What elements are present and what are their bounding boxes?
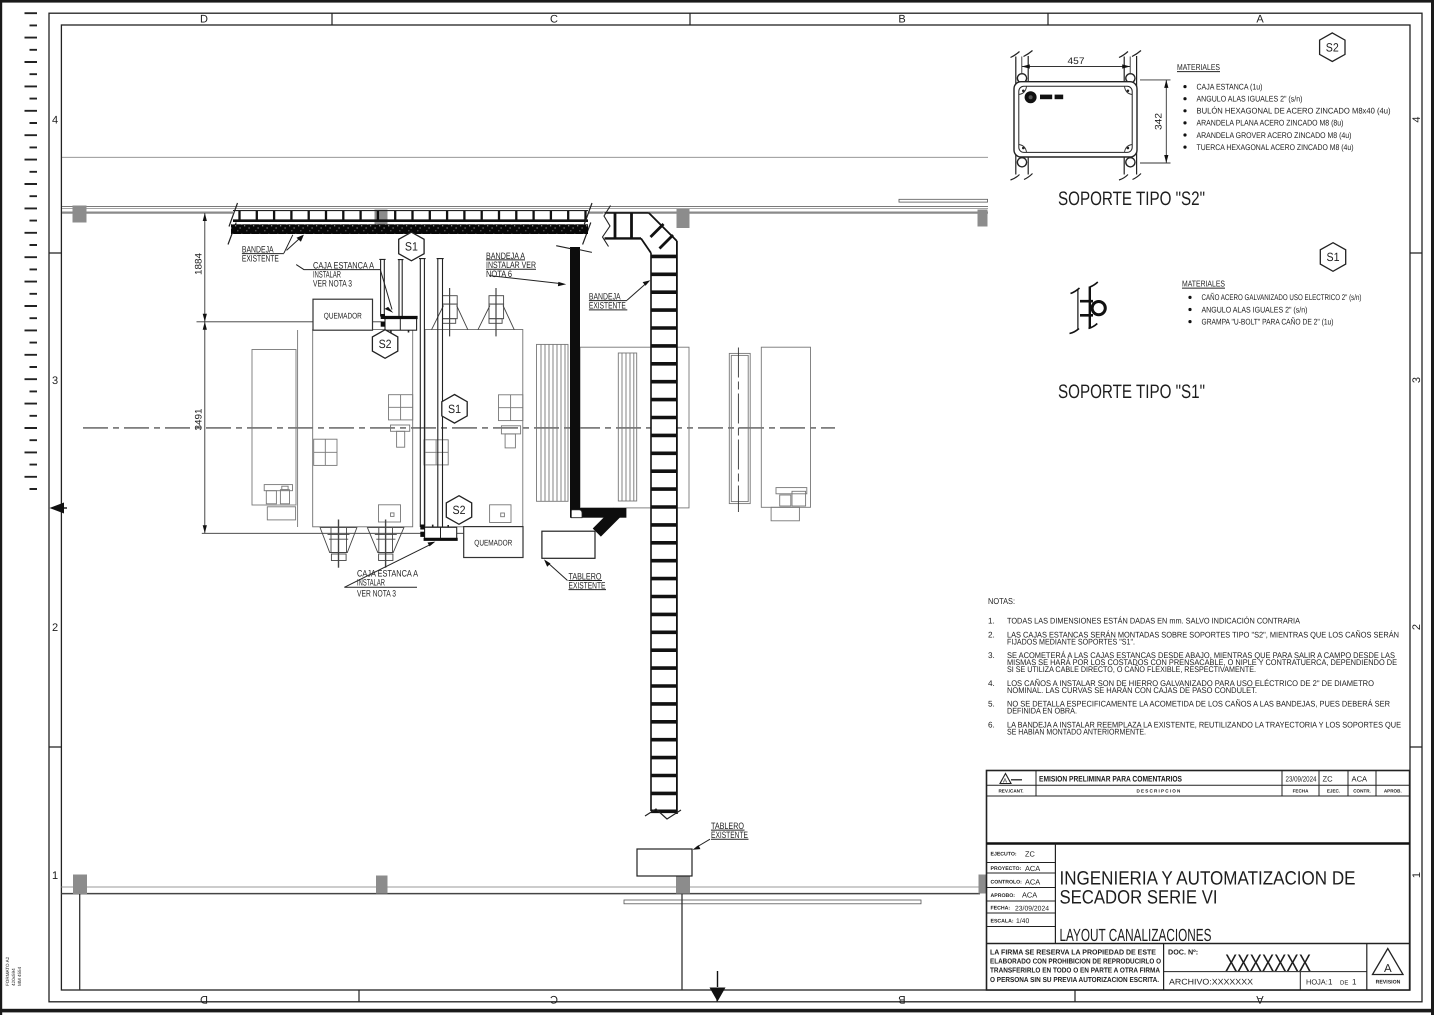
svg-text:2: 2	[52, 622, 58, 634]
svg-text:ANGULO ALAS IGUALES 2" (s/n): ANGULO ALAS IGUALES 2" (s/n)	[1202, 305, 1308, 314]
svg-text:EXISTENTE: EXISTENTE	[711, 830, 748, 840]
svg-text:EXISTENTE: EXISTENTE	[589, 301, 626, 311]
svg-text:2: 2	[1411, 624, 1423, 630]
svg-text:S1: S1	[405, 240, 418, 254]
svg-text:420x594: 420x594	[11, 968, 16, 986]
svg-text:3491: 3491	[194, 409, 205, 431]
svg-text:EJECUTO:: EJECUTO:	[991, 852, 1017, 858]
svg-text:D: D	[200, 993, 208, 1005]
svg-text:3: 3	[1411, 377, 1423, 383]
svg-text:3.: 3.	[988, 651, 995, 660]
svg-text:XXXXXXX: XXXXXXX	[1225, 950, 1311, 977]
svg-text:4: 4	[1411, 116, 1423, 122]
svg-text:ZC: ZC	[1025, 850, 1036, 859]
svg-text:MATERIALES: MATERIALES	[1182, 279, 1225, 289]
svg-text:ACA: ACA	[1025, 878, 1040, 887]
svg-text:S1: S1	[448, 402, 461, 416]
svg-text:APROBO:: APROBO:	[991, 893, 1016, 899]
svg-text:QUEMADOR: QUEMADOR	[324, 311, 362, 320]
svg-text:3: 3	[52, 375, 58, 387]
svg-text:CAJA ESTANCA (1u): CAJA ESTANCA (1u)	[1197, 82, 1263, 91]
svg-text:CONTR.: CONTR.	[1353, 789, 1371, 794]
svg-text:EXISTENTE: EXISTENTE	[242, 254, 279, 264]
svg-text:4.: 4.	[988, 679, 995, 688]
svg-text:FIJADOS MEDIANTE SOPORTES "S1": FIJADOS MEDIANTE SOPORTES "S1".	[1007, 638, 1135, 647]
svg-text:ESCALA:: ESCALA:	[991, 919, 1014, 925]
svg-text:ELABORADO CON PROHIBICION DE R: ELABORADO CON PROHIBICION DE REPRODUCIRL…	[990, 957, 1161, 966]
svg-text:S2: S2	[1326, 40, 1339, 54]
svg-text:SOPORTE TIPO "S1": SOPORTE TIPO "S1"	[1058, 381, 1205, 403]
svg-text:DE: DE	[1340, 979, 1348, 986]
svg-text:1: 1	[1411, 872, 1423, 878]
svg-text:1884: 1884	[194, 253, 205, 275]
svg-text:B: B	[898, 14, 905, 26]
svg-text:APROB.: APROB.	[1384, 789, 1402, 794]
svg-text:B: B	[898, 993, 905, 1005]
svg-text:ARCHIVO:XXXXXXX: ARCHIVO:XXXXXXX	[1169, 978, 1254, 987]
svg-text:HOJA:: HOJA:	[1306, 977, 1328, 986]
svg-text:ANGULO ALAS IGUALES 2" (s/n): ANGULO ALAS IGUALES 2" (s/n)	[1197, 95, 1303, 104]
svg-text:EJEC.: EJEC.	[1327, 789, 1340, 794]
svg-text:2.: 2.	[988, 631, 995, 640]
svg-text:BULÓN HEXAGONAL DE ACERO ZINCA: BULÓN HEXAGONAL DE ACERO ZINCADO M8x40 (…	[1197, 106, 1391, 116]
svg-text:QUEMADOR: QUEMADOR	[474, 539, 512, 548]
svg-text:MM 4554: MM 4554	[17, 966, 22, 986]
svg-text:SOPORTE TIPO "S2": SOPORTE TIPO "S2"	[1058, 188, 1205, 210]
svg-text:GRAMPA "U-BOLT" PARA CAÑO DE 2: GRAMPA "U-BOLT" PARA CAÑO DE 2" (1u)	[1202, 316, 1334, 326]
svg-text:REV./CANT.: REV./CANT.	[998, 789, 1023, 794]
svg-text:23/09/2024: 23/09/2024	[1015, 906, 1049, 913]
svg-text:TODAS LAS DIMENSIONES ESTÁN DA: TODAS LAS DIMENSIONES ESTÁN DADAS EN mm.…	[1007, 615, 1300, 625]
svg-text:A: A	[1256, 14, 1264, 26]
svg-text:O PERSONA SIN SU PREVIA AUTORI: O PERSONA SIN SU PREVIA AUTORIZACION ESC…	[990, 975, 1159, 984]
svg-text:4: 4	[52, 115, 58, 127]
svg-text:FECHA: FECHA	[1293, 789, 1310, 794]
svg-text:NOMINAL. LAS CURVAS SE HARÁN C: NOMINAL. LAS CURVAS SE HARÁN CON CAJAS D…	[1007, 685, 1257, 695]
svg-text:A: A	[1256, 993, 1264, 1005]
svg-text:SE HABÍAN MONTADO ANTERIORMENT: SE HABÍAN MONTADO ANTERIORMENTE.	[1007, 726, 1146, 736]
svg-text:1/40: 1/40	[1016, 918, 1029, 925]
svg-text:ZC: ZC	[1323, 774, 1334, 783]
svg-text:23/09/2024: 23/09/2024	[1286, 774, 1317, 783]
svg-text:PROYECTO:: PROYECTO:	[991, 866, 1022, 872]
svg-text:ACA: ACA	[1352, 774, 1369, 783]
svg-text:ARANDELA GROVER ACERO ZINCADO: ARANDELA GROVER ACERO ZINCADO M8 (4u)	[1197, 131, 1352, 140]
svg-text:457: 457	[1068, 56, 1085, 67]
svg-text:C: C	[550, 14, 558, 26]
svg-text:TRANSFERIRLO EN TODO O EN PART: TRANSFERIRLO EN TODO O EN PARTE A OTRA F…	[990, 966, 1160, 975]
svg-text:1: 1	[1328, 977, 1333, 986]
svg-text:ACA: ACA	[1022, 891, 1037, 900]
svg-text:SI SE UTILIZA CABLE DIRECTO, O: SI SE UTILIZA CABLE DIRECTO, O CAÑO FLEX…	[1007, 664, 1256, 674]
svg-text:FORMATO A2: FORMATO A2	[5, 956, 10, 986]
svg-text:REVISION: REVISION	[1376, 980, 1401, 986]
svg-text:VER NOTA 3: VER NOTA 3	[357, 588, 396, 598]
svg-text:INGENIERIA Y AUTOMATIZACION DE: INGENIERIA Y AUTOMATIZACION DE	[1060, 869, 1356, 890]
svg-text:CONTROLO:: CONTROLO:	[991, 880, 1023, 886]
svg-text:1: 1	[52, 870, 58, 882]
svg-text:DESCRIPCION: DESCRIPCION	[1136, 789, 1181, 794]
svg-text:S1: S1	[1327, 250, 1340, 264]
svg-text:1.: 1.	[988, 616, 995, 625]
svg-text:VER NOTA 3: VER NOTA 3	[313, 279, 352, 289]
svg-text:S2: S2	[453, 503, 466, 517]
svg-text:6.: 6.	[988, 720, 995, 729]
svg-text:C: C	[550, 993, 558, 1005]
svg-text:SECADOR SERIE VI: SECADOR SERIE VI	[1060, 888, 1218, 909]
svg-text:342: 342	[1154, 113, 1165, 130]
svg-text:CAÑO ACERO GALVANIZADO USO ELE: CAÑO ACERO GALVANIZADO USO ELECTRICO 2" …	[1202, 292, 1362, 302]
svg-text:MATERIALES: MATERIALES	[1177, 62, 1220, 72]
svg-text:FECHA:: FECHA:	[991, 906, 1011, 912]
svg-text:1: 1	[1352, 977, 1357, 986]
svg-text:5.: 5.	[988, 700, 995, 709]
svg-text:ARANDELA PLANA ACERO ZINCADO M: ARANDELA PLANA ACERO ZINCADO M8 (8u)	[1197, 119, 1344, 128]
svg-text:ACA: ACA	[1025, 864, 1040, 873]
svg-text:LA FIRMA SE RESERVA LA PROPIED: LA FIRMA SE RESERVA LA PROPIEDAD DE ESTE	[990, 948, 1156, 957]
svg-text:EMISION PRELIMINAR PARA COMENT: EMISION PRELIMINAR PARA COMENTARIOS	[1039, 774, 1183, 783]
svg-text:D: D	[200, 14, 208, 26]
svg-text:NOTAS:: NOTAS:	[988, 596, 1015, 606]
svg-text:LAYOUT CANALIZACIONES: LAYOUT CANALIZACIONES	[1060, 925, 1212, 945]
svg-text:EXISTENTE: EXISTENTE	[569, 580, 606, 590]
svg-text:TUERCA HEXAGONAL ACERO ZINCADO: TUERCA HEXAGONAL ACERO ZINCADO M8 (4u)	[1197, 143, 1354, 152]
svg-text:DOC. Nº:: DOC. Nº:	[1168, 948, 1198, 957]
svg-text:DEFINIDA EN OBRA.: DEFINIDA EN OBRA.	[1007, 707, 1077, 716]
svg-text:A: A	[1003, 777, 1007, 784]
svg-text:S2: S2	[379, 337, 392, 351]
svg-text:A: A	[1384, 963, 1392, 975]
